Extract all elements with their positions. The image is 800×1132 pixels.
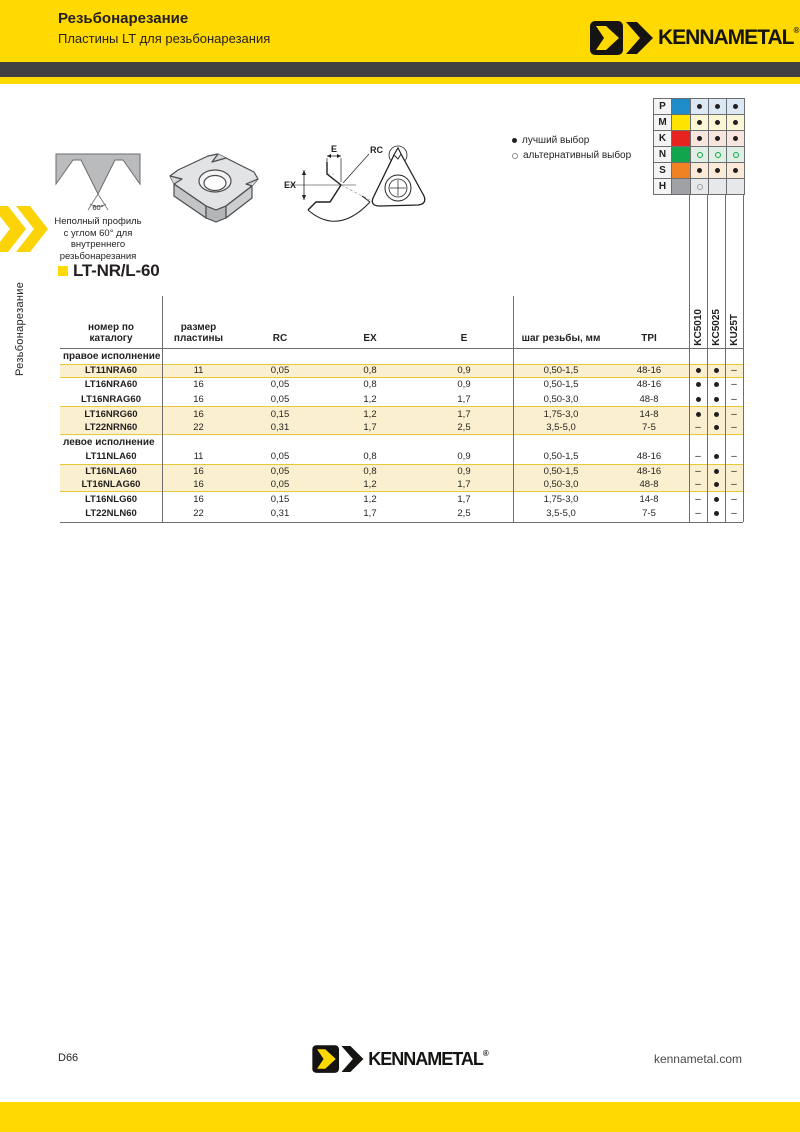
no-grade-dash: – xyxy=(695,479,701,490)
catalog-number: LT16NLA60 xyxy=(60,466,162,477)
catalog-number: LT16NRG60 xyxy=(60,409,162,420)
best-choice-icon xyxy=(714,425,719,430)
no-grade-dash: – xyxy=(731,451,737,462)
grade-col-line-1 xyxy=(689,195,690,522)
pitch-value: 3,5-5,0 xyxy=(513,422,609,433)
grade-chart-row-S: S xyxy=(654,163,745,179)
kennametal-logo-icon xyxy=(590,20,654,56)
grade-availability-cell: – xyxy=(725,409,743,420)
material-letter: H xyxy=(654,179,672,195)
size-value: 16 xyxy=(162,466,235,477)
material-color-swatch xyxy=(672,115,691,131)
tpi-value: 14-8 xyxy=(609,409,689,420)
website-link[interactable]: kennametal.com xyxy=(654,1052,742,1066)
grade-chart-cell xyxy=(691,115,709,131)
grade-chart-cell xyxy=(691,163,709,179)
material-color-swatch xyxy=(672,131,691,147)
rc-value: 0,31 xyxy=(235,422,325,433)
catalog-number: LT16NLAG60 xyxy=(60,479,162,490)
col-header-tpi: TPI xyxy=(609,333,689,348)
grade-chart-cell xyxy=(727,99,745,115)
grade-chart-cell xyxy=(691,99,709,115)
nav-chevrons-icon xyxy=(0,206,48,252)
grade-availability-cell xyxy=(707,511,725,516)
best-choice-icon xyxy=(714,382,719,387)
e-value: 1,7 xyxy=(415,394,513,405)
product-code-heading: LT-NR/L-60 xyxy=(58,261,159,281)
grade-availability-cell: – xyxy=(725,494,743,505)
grade-availability-cell: – xyxy=(725,379,743,390)
rc-value: 0,05 xyxy=(235,451,325,462)
ex-value: 1,2 xyxy=(325,479,415,490)
legend-best: лучший выбор xyxy=(512,135,589,146)
best-choice-icon xyxy=(697,104,702,109)
no-grade-dash: – xyxy=(731,394,737,405)
grade-chart-cell xyxy=(727,163,745,179)
alternative-choice-icon xyxy=(512,153,518,159)
grade-availability-cell: – xyxy=(725,508,743,519)
grade-chart-cell xyxy=(709,115,727,131)
best-choice-icon xyxy=(733,120,738,125)
material-letter: K xyxy=(654,131,672,147)
best-choice-icon xyxy=(714,482,719,487)
no-grade-dash: – xyxy=(695,422,701,433)
insert-3d-drawing xyxy=(160,146,276,238)
table-bottom-rule xyxy=(60,522,743,523)
material-color-swatch xyxy=(672,147,691,163)
col-header-grade-ku25t: KU25T xyxy=(725,296,743,346)
size-value: 16 xyxy=(162,394,235,405)
rc-value: 0,31 xyxy=(235,508,325,519)
no-grade-dash: – xyxy=(731,494,737,505)
pitch-value: 0,50-1,5 xyxy=(513,365,609,376)
grade-availability-cell xyxy=(689,382,707,387)
grade-availability-cell xyxy=(689,412,707,417)
grade-chart-cell xyxy=(727,131,745,147)
alternative-choice-icon xyxy=(733,152,739,158)
best-choice-icon xyxy=(696,368,701,373)
pitch-value: 0,50-3,0 xyxy=(513,479,609,490)
catalog-number: LT22NRN60 xyxy=(60,422,162,433)
grade-chart-cell xyxy=(691,179,709,195)
table-vrule-e xyxy=(513,296,514,522)
grade-availability-cell: – xyxy=(689,479,707,490)
e-value: 0,9 xyxy=(415,451,513,462)
material-letter: P xyxy=(654,99,672,115)
ex-value: 0,8 xyxy=(325,379,415,390)
catalog-page: Резьбонарезание Пластины LT для резьбона… xyxy=(0,0,800,1132)
page-subtitle: Пластины LT для резьбонарезания xyxy=(58,31,270,46)
tpi-value: 48-16 xyxy=(609,379,689,390)
size-value: 22 xyxy=(162,422,235,433)
catalog-number: LT11NLA60 xyxy=(60,451,162,462)
size-value: 11 xyxy=(162,365,235,376)
grade-chart-cell xyxy=(691,131,709,147)
col-header-ex: EX xyxy=(325,333,415,348)
best-choice-icon xyxy=(696,412,701,417)
pitch-value: 1,75-3,0 xyxy=(513,409,609,420)
grade-chart-cell xyxy=(709,147,727,163)
col-header-rc: RC xyxy=(235,333,325,348)
tpi-value: 48-8 xyxy=(609,479,689,490)
tpi-value: 7-5 xyxy=(609,508,689,519)
grade-availability-cell xyxy=(707,382,725,387)
best-choice-icon xyxy=(714,368,719,373)
grade-availability-cell: – xyxy=(725,451,743,462)
col-header-e: E xyxy=(415,333,513,348)
grade-availability-cell: – xyxy=(725,422,743,433)
grade-availability-cell: – xyxy=(725,479,743,490)
col-header-size: размерпластины xyxy=(162,322,235,348)
no-grade-dash: – xyxy=(695,508,701,519)
page-number: D66 xyxy=(58,1052,78,1064)
tpi-value: 7-5 xyxy=(609,422,689,433)
best-choice-icon xyxy=(696,397,701,402)
grade-chart-row-M: M xyxy=(654,115,745,131)
grade-chart-cell xyxy=(709,179,727,195)
header-divider-accent xyxy=(0,77,800,84)
grade-availability-cell: – xyxy=(725,365,743,376)
tpi-value: 48-16 xyxy=(609,466,689,477)
ex-value: 0,8 xyxy=(325,466,415,477)
rc-value: 0,05 xyxy=(235,479,325,490)
e-value: 1,7 xyxy=(415,494,513,505)
best-choice-icon xyxy=(697,168,702,173)
e-value: 1,7 xyxy=(415,409,513,420)
grade-availability-cell: – xyxy=(689,451,707,462)
rc-value: 0,05 xyxy=(235,365,325,376)
ex-value: 1,2 xyxy=(325,409,415,420)
col-header-grade-kc5025: KC5025 xyxy=(707,296,725,346)
best-choice-icon xyxy=(715,168,720,173)
grade-availability-cell: – xyxy=(689,466,707,477)
grade-availability-cell xyxy=(707,497,725,502)
alternative-choice-icon xyxy=(697,184,703,190)
tpi-value: 48-16 xyxy=(609,451,689,462)
footer-kennametal-logo-text: KENNAMETAL® xyxy=(368,1049,488,1070)
no-grade-dash: – xyxy=(731,508,737,519)
footer-kennametal-logo-icon xyxy=(312,1044,364,1074)
rc-value: 0,05 xyxy=(235,466,325,477)
no-grade-dash: – xyxy=(695,451,701,462)
ex-value: 1,2 xyxy=(325,494,415,505)
best-choice-icon xyxy=(733,104,738,109)
e-value: 0,9 xyxy=(415,365,513,376)
pitch-value: 0,50-1,5 xyxy=(513,466,609,477)
material-grade-chart: PMKNSH xyxy=(653,98,745,195)
table-vrule-catalog xyxy=(162,296,163,522)
grade-col-line-3 xyxy=(725,195,726,522)
size-value: 16 xyxy=(162,379,235,390)
grade-availability-cell: – xyxy=(725,394,743,405)
size-value: 16 xyxy=(162,494,235,505)
dim-e-label: E xyxy=(331,144,337,154)
best-choice-icon xyxy=(697,136,702,141)
catalog-number: LT16NRAG60 xyxy=(60,394,162,405)
thread-profile-drawing: 60° xyxy=(50,150,146,216)
legend-alternative: альтернативный выбор xyxy=(512,150,631,161)
pitch-value: 0,50-1,5 xyxy=(513,379,609,390)
size-value: 11 xyxy=(162,451,235,462)
rc-value: 0,05 xyxy=(235,379,325,390)
tpi-value: 48-16 xyxy=(609,365,689,376)
best-choice-icon xyxy=(733,136,738,141)
kennametal-logo: KENNAMETAL® xyxy=(590,20,798,56)
no-grade-dash: – xyxy=(731,379,737,390)
no-grade-dash: – xyxy=(731,365,737,376)
grade-chart-cell xyxy=(691,147,709,163)
grade-availability-cell xyxy=(707,397,725,402)
best-choice-icon xyxy=(714,469,719,474)
material-color-swatch xyxy=(672,99,691,115)
insert-top-view-drawing xyxy=(360,142,436,222)
alternative-choice-icon xyxy=(697,152,703,158)
best-choice-icon xyxy=(715,136,720,141)
catalog-number: LT16NRA60 xyxy=(60,379,162,390)
best-choice-icon xyxy=(733,168,738,173)
no-grade-dash: – xyxy=(731,466,737,477)
grade-availability-cell xyxy=(689,368,707,373)
material-color-swatch xyxy=(672,179,691,195)
grade-chart-cell xyxy=(709,163,727,179)
page-title: Резьбонарезание xyxy=(58,10,188,27)
ex-value: 0,8 xyxy=(325,365,415,376)
kennametal-logo-text: KENNAMETAL® xyxy=(658,26,798,50)
pitch-value: 1,75-3,0 xyxy=(513,494,609,505)
grade-availability-cell xyxy=(707,454,725,459)
product-code: LT-NR/L-60 xyxy=(73,261,159,281)
alternative-choice-icon xyxy=(715,152,721,158)
grade-chart-row-H: H xyxy=(654,179,745,195)
size-value: 16 xyxy=(162,409,235,420)
grade-availability-cell: – xyxy=(689,494,707,505)
best-choice-icon xyxy=(697,120,702,125)
footer-band xyxy=(0,1102,800,1132)
e-value: 0,9 xyxy=(415,466,513,477)
grade-chart-cell xyxy=(727,179,745,195)
e-value: 2,5 xyxy=(415,422,513,433)
material-letter: N xyxy=(654,147,672,163)
catalog-number: LT11NRA60 xyxy=(60,365,162,376)
rc-value: 0,05 xyxy=(235,394,325,405)
ex-value: 1,7 xyxy=(325,508,415,519)
tpi-value: 14-8 xyxy=(609,494,689,505)
grade-chart-cell xyxy=(727,115,745,131)
tpi-value: 48-8 xyxy=(609,394,689,405)
grade-col-line-4 xyxy=(743,195,744,522)
grade-availability-cell: – xyxy=(689,422,707,433)
ex-value: 0,8 xyxy=(325,451,415,462)
grade-availability-cell xyxy=(707,469,725,474)
rc-value: 0,15 xyxy=(235,409,325,420)
grade-availability-cell xyxy=(707,368,725,373)
catalog-number: LT16NLG60 xyxy=(60,494,162,505)
product-description: Неполный профиль с углом 60° для внутрен… xyxy=(52,216,144,262)
size-value: 22 xyxy=(162,508,235,519)
best-choice-icon xyxy=(714,454,719,459)
no-grade-dash: – xyxy=(731,479,737,490)
no-grade-dash: – xyxy=(695,494,701,505)
no-grade-dash: – xyxy=(731,409,737,420)
best-choice-icon xyxy=(512,138,517,143)
ex-value: 1,7 xyxy=(325,422,415,433)
ex-value: 1,2 xyxy=(325,394,415,405)
col-header-grade-kc5010: KC5010 xyxy=(689,296,707,346)
pitch-value: 3,5-5,0 xyxy=(513,508,609,519)
catalog-number: LT22NLN60 xyxy=(60,508,162,519)
grade-chart-row-N: N xyxy=(654,147,745,163)
grade-col-line-2 xyxy=(707,195,708,522)
grade-chart-cell xyxy=(709,99,727,115)
best-choice-icon xyxy=(714,397,719,402)
grade-availability-cell xyxy=(689,397,707,402)
grade-chart-cell xyxy=(709,131,727,147)
material-letter: S xyxy=(654,163,672,179)
grade-availability-cell xyxy=(707,412,725,417)
best-choice-icon xyxy=(715,104,720,109)
material-letter: M xyxy=(654,115,672,131)
best-choice-icon xyxy=(714,412,719,417)
e-value: 0,9 xyxy=(415,379,513,390)
pitch-value: 0,50-1,5 xyxy=(513,451,609,462)
size-value: 16 xyxy=(162,479,235,490)
grade-chart-row-P: P xyxy=(654,99,745,115)
grade-availability-cell: – xyxy=(689,508,707,519)
grade-availability-cell xyxy=(707,425,725,430)
grade-chart-cell xyxy=(727,147,745,163)
pitch-value: 0,50-3,0 xyxy=(513,394,609,405)
yellow-bullet-icon xyxy=(58,266,68,276)
footer-kennametal-logo: KENNAMETAL® xyxy=(312,1044,488,1074)
no-grade-dash: – xyxy=(695,466,701,477)
no-grade-dash: – xyxy=(731,422,737,433)
e-value: 1,7 xyxy=(415,479,513,490)
col-header-pitch: шаг резьбы, мм xyxy=(513,333,609,348)
best-choice-icon xyxy=(696,382,701,387)
col-header-catalog: номер покаталогу xyxy=(60,322,162,348)
best-choice-icon xyxy=(714,497,719,502)
best-choice-icon xyxy=(715,120,720,125)
header-divider-bar xyxy=(0,62,800,77)
grade-chart-row-K: K xyxy=(654,131,745,147)
sidebar-vertical-label: Резьбонарезание xyxy=(14,256,26,376)
rc-value: 0,15 xyxy=(235,494,325,505)
material-color-swatch xyxy=(672,163,691,179)
grade-availability-cell: – xyxy=(725,466,743,477)
profile-angle-label: 60° xyxy=(92,203,103,212)
e-value: 2,5 xyxy=(415,508,513,519)
best-choice-icon xyxy=(714,511,719,516)
grade-availability-cell xyxy=(707,482,725,487)
